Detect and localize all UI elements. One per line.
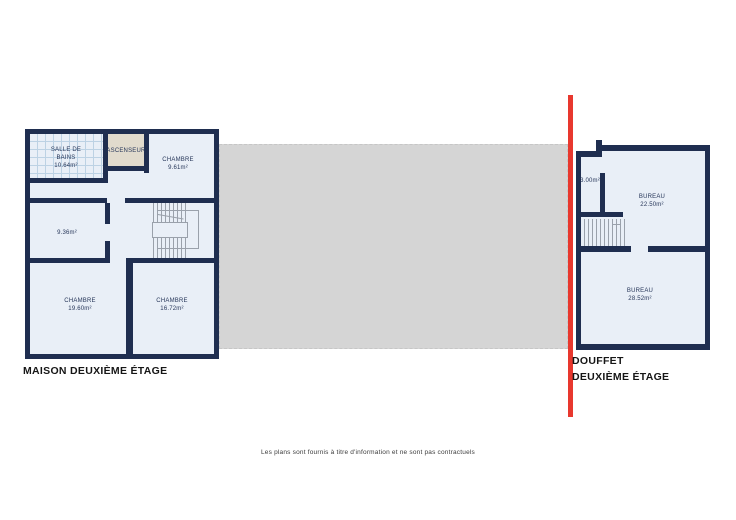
room-area: 9.61m² xyxy=(148,164,208,172)
wall xyxy=(103,134,108,183)
connecting-zone xyxy=(219,144,568,349)
room-area: 16.72m² xyxy=(142,305,202,313)
wall xyxy=(596,145,710,151)
floor-plan-page: SALLE DE BAINS 10.64m² ASCENSEUR CHAMBRE… xyxy=(0,0,736,520)
room-name: SALLE DE BAINS xyxy=(42,146,90,162)
stair-landing xyxy=(152,222,188,238)
room-area: 3.00m² xyxy=(577,177,603,185)
wall xyxy=(576,212,623,217)
room-area: 9.36m² xyxy=(37,229,97,237)
douffet-title-line2: DEUXIÈME ÉTAGE xyxy=(572,369,669,385)
wall xyxy=(30,178,107,183)
maison-title: MAISON DEUXIÈME ÉTAGE xyxy=(23,363,167,379)
room-label: CHAMBRE 19.60m² xyxy=(50,297,110,313)
disclaimer-text: Les plans sont fournis à titre d'informa… xyxy=(0,449,736,456)
room-name: ASCENSEUR xyxy=(101,147,151,155)
room-name: CHAMBRE xyxy=(148,156,208,164)
wall xyxy=(576,246,631,252)
wall xyxy=(25,258,110,263)
wall xyxy=(648,246,705,252)
wall xyxy=(705,145,710,350)
room-area: 22.50m² xyxy=(622,201,682,209)
wall xyxy=(103,166,149,171)
room-label: BUREAU 22.50m² xyxy=(622,193,682,209)
stair-direction-arrow xyxy=(613,224,621,225)
room-label: 3.00m² xyxy=(577,177,603,185)
wall xyxy=(126,258,133,354)
douffet-title-line1: DOUFFET xyxy=(572,353,669,369)
room-name: BUREAU xyxy=(622,193,682,201)
room-label: 9.36m² xyxy=(37,229,97,237)
room-name: BUREAU xyxy=(610,287,670,295)
room-name: CHAMBRE xyxy=(142,297,202,305)
room-label: SALLE DE BAINS 10.64m² xyxy=(42,146,90,170)
wall xyxy=(105,203,110,224)
room-label: ASCENSEUR xyxy=(101,147,151,155)
wall xyxy=(576,344,710,350)
wall xyxy=(25,198,107,203)
room-area: 10.64m² xyxy=(42,162,90,170)
room-area: 19.60m² xyxy=(50,305,110,313)
room-label: CHAMBRE 9.61m² xyxy=(148,156,208,172)
room-name: CHAMBRE xyxy=(50,297,110,305)
room-label: CHAMBRE 16.72m² xyxy=(142,297,202,313)
room-label: BUREAU 28.52m² xyxy=(610,287,670,303)
wall xyxy=(133,258,219,263)
douffet-title: DOUFFET DEUXIÈME ÉTAGE xyxy=(572,353,669,385)
wall xyxy=(105,241,110,258)
room-area: 28.52m² xyxy=(610,295,670,303)
